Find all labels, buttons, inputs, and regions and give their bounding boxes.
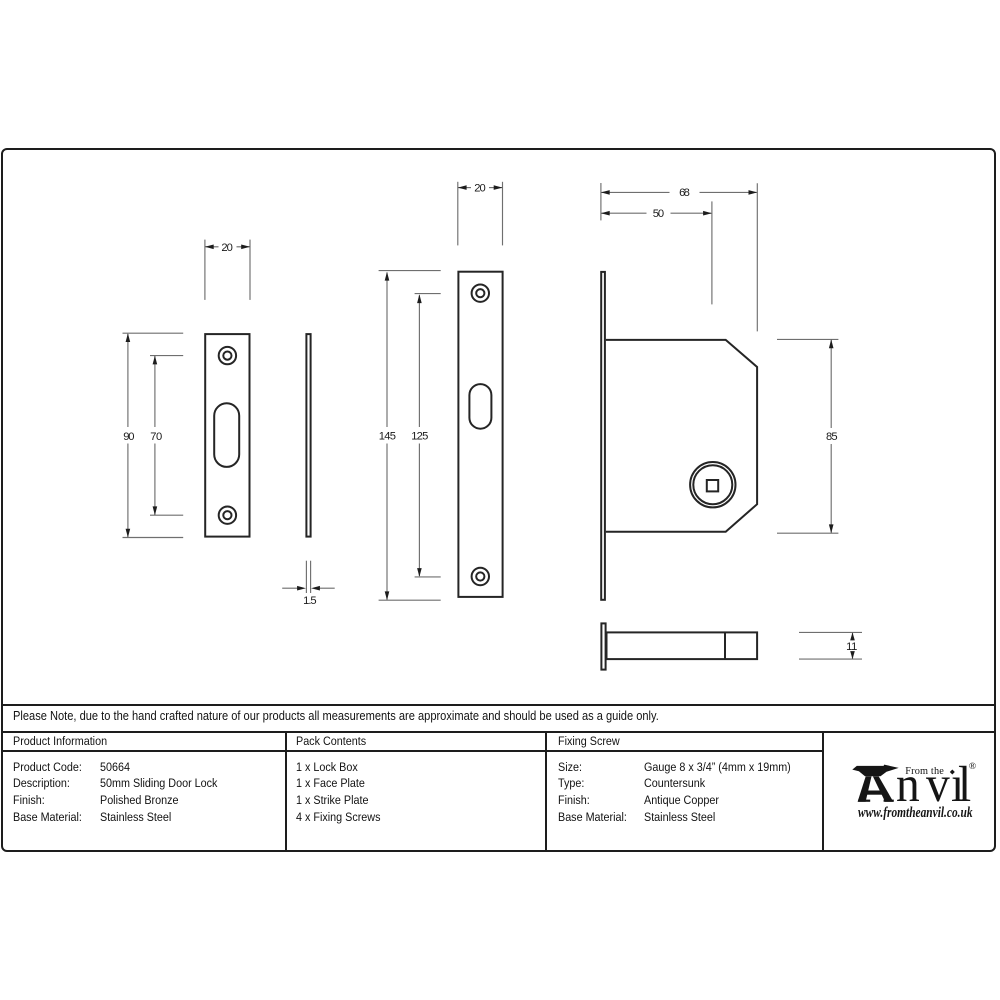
svg-text:20: 20 xyxy=(474,183,485,195)
svg-text:68: 68 xyxy=(679,187,690,199)
svg-text:125: 125 xyxy=(411,431,428,443)
svg-text:145: 145 xyxy=(379,431,396,443)
svg-text:1.5: 1.5 xyxy=(303,595,317,607)
svg-text:70: 70 xyxy=(150,431,162,443)
svg-text:85: 85 xyxy=(826,431,838,443)
svg-text:90: 90 xyxy=(123,431,134,443)
svg-text:50: 50 xyxy=(653,208,664,220)
svg-text:20: 20 xyxy=(221,242,232,254)
svg-text:11: 11 xyxy=(846,641,857,653)
